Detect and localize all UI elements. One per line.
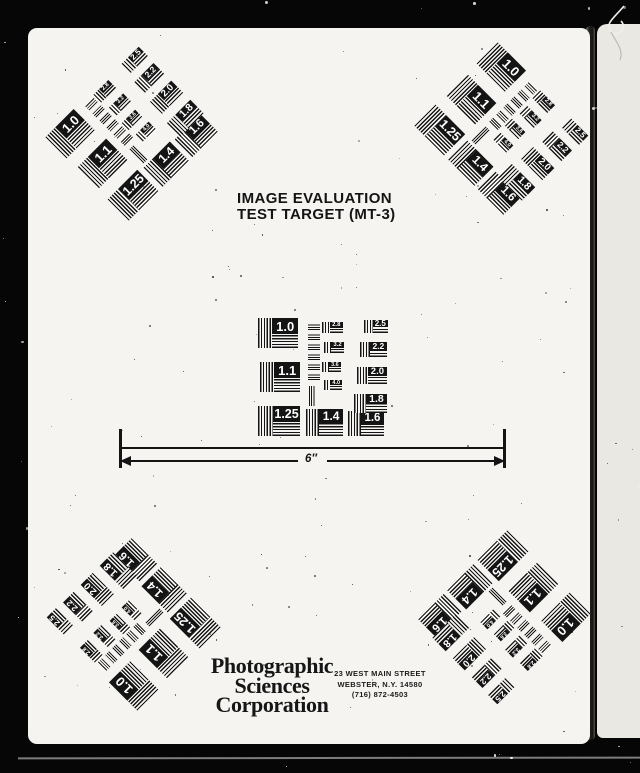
horizontal-stripes-block (273, 422, 300, 436)
resolution-chip-1-4: 1.4 (144, 141, 189, 186)
micro-stripe-bar (308, 324, 320, 330)
resolution-chip-1-1: 1.1 (260, 362, 300, 392)
resolution-chip-4-0: 4.0 (494, 133, 514, 153)
vertical-stripes-block (324, 342, 331, 353)
horizontal-stripes-block (373, 327, 388, 333)
resolution-chip-2-2: 2.2 (360, 342, 387, 357)
organization-line-3: Corporation (206, 695, 338, 715)
resolution-chip-3-6: 3.6 (494, 621, 515, 642)
scale-end-tick-right (503, 429, 506, 468)
speck (21, 461, 23, 463)
title-line-1: IMAGE EVALUATION (237, 191, 457, 207)
scale-arrowhead-left (120, 456, 131, 466)
micro-stripe-bar (538, 641, 551, 654)
resolution-chip-1-1: 1.1 (447, 75, 496, 124)
resolution-chip-2-2: 2.2 (63, 592, 93, 622)
resolution-chip-1-0: 1.0 (45, 109, 94, 158)
vertical-stripes-block (322, 362, 329, 372)
speck (3, 238, 4, 239)
micro-stripe-bar (308, 354, 320, 360)
horizontal-stripes-block (272, 334, 298, 348)
horizontal-stripes-block (366, 404, 387, 413)
resolution-chip-1-1: 1.1 (139, 629, 188, 678)
test-target-bottom-right: 1.0 1.1 1.25 1.4 1.6 2.5 2.2 2.0 1.8 (415, 530, 590, 705)
resolution-chip-2-5: 2.5 (488, 678, 514, 704)
resolution-value: 1.0 (272, 318, 298, 334)
test-target-top-left: 1.0 1.1 1.25 1.4 1.6 2.5 2.2 2.0 1.8 (45, 45, 220, 220)
horizontal-stripes-block (329, 367, 341, 372)
test-target-sheet: IMAGE EVALUATION TEST TARGET (MT-3) 1.0 … (28, 28, 590, 744)
resolution-chip-2-0: 2.0 (521, 147, 554, 180)
resolution-chip-1-25: 1.25 (170, 598, 221, 649)
resolution-value: 1.8 (366, 394, 387, 404)
test-target-bottom-left: 1.0 1.1 1.25 1.4 1.6 2.5 2.2 2.0 1.8 (45, 535, 220, 710)
title-line-2: TEST TARGET (MT-3) (237, 207, 457, 223)
micro-vertical-mark (129, 145, 147, 163)
address-line-2: WEBSTER, N.Y. 14580 (330, 680, 430, 691)
vertical-stripes-block (322, 322, 330, 333)
resolution-value: 1.4 (319, 409, 343, 424)
resolution-chip-1-6: 1.6 (348, 411, 384, 436)
resolution-chip-3-2: 3.2 (520, 106, 542, 128)
speck (265, 1, 268, 4)
horizontal-stripes-block (370, 350, 387, 357)
horizontal-stripes-block (274, 378, 300, 392)
resolution-chip-4-0: 4.0 (122, 600, 142, 620)
micro-stripe-bar (308, 334, 320, 340)
resolution-chip-3-2: 3.2 (109, 93, 131, 115)
organization-address: 23 WEST MAIN STREET WEBSTER, N.Y. 14580 … (330, 669, 430, 701)
resolution-chip-1-25: 1.25 (108, 170, 159, 221)
speck (473, 2, 476, 5)
resolution-chip-2-8: 2.8 (322, 322, 343, 333)
horizontal-stripes-block (330, 385, 342, 390)
scale-rule-line (120, 447, 505, 449)
resolution-chip-1-0: 1.0 (477, 42, 526, 91)
resolution-chip-4-0: 4.0 (136, 122, 156, 142)
resolution-chip-1-0: 1.0 (109, 661, 158, 710)
resolution-chip-3-2: 3.2 (93, 625, 115, 647)
horizontal-stripes-block (319, 424, 343, 436)
resolution-chip-4-0: 4.0 (324, 380, 342, 390)
vertical-stripes-block (360, 342, 370, 357)
horizontal-stripes-block (331, 348, 344, 353)
vertical-stripes-block (258, 406, 273, 436)
speck (5, 301, 6, 302)
vertical-stripes-block (260, 362, 274, 392)
resolution-chip-2-0: 2.0 (453, 637, 486, 670)
resolution-chip-1-4: 1.4 (306, 409, 343, 436)
resolution-chip-1-25: 1.25 (414, 105, 465, 156)
speck (18, 617, 19, 618)
resolution-chip-3-6: 3.6 (505, 119, 526, 140)
resolution-chip-3-6: 3.6 (322, 362, 341, 372)
resolution-chip-3-2: 3.2 (505, 636, 527, 658)
vertical-stripes-block (364, 320, 373, 333)
resolution-chip-2-8: 2.8 (93, 80, 116, 103)
vertical-stripes-block (354, 394, 366, 413)
resolution-chip-2-2: 2.2 (134, 63, 164, 93)
resolution-chip-1-8: 1.8 (354, 394, 387, 413)
speck (618, 746, 620, 748)
horizontal-stripes-block (368, 376, 387, 384)
horizontal-stripes-block (361, 425, 384, 437)
resolution-chip-1-25: 1.25 (258, 406, 300, 436)
resolution-chip-3-6: 3.6 (122, 110, 143, 131)
resolution-chip-2-8: 2.8 (520, 648, 543, 671)
resolution-chip-2-5: 2.5 (364, 320, 388, 333)
resolution-chip-1-0: 1.0 (541, 593, 590, 642)
scanned-microfilm-frame: { "document": { "title_line1": "IMAGE EV… (0, 0, 640, 773)
scanner-edge-line (18, 757, 640, 760)
scale-arrowhead-right (494, 456, 505, 466)
address-line-1: 23 WEST MAIN STREET (330, 669, 430, 680)
speck (630, 762, 631, 763)
resolution-value: 2.5 (373, 320, 388, 327)
resolution-chip-1-4: 1.4 (141, 567, 186, 612)
resolution-chip-2-0: 2.0 (357, 367, 387, 384)
scale-arrow-line-right (327, 460, 496, 462)
micro-stripe-bar (308, 364, 320, 370)
underlying-page (597, 24, 640, 738)
vertical-stripes-block (258, 318, 272, 348)
resolution-chip-1-0: 1.0 (258, 318, 298, 348)
speck (421, 8, 422, 9)
speck (499, 754, 500, 755)
speck (21, 341, 24, 344)
micro-vertical-mark (488, 588, 506, 606)
address-line-3: (716) 872-4503 (330, 690, 430, 701)
resolution-chip-2-8: 2.8 (532, 90, 555, 113)
resolution-value: 1.25 (273, 406, 300, 422)
resolution-value: 1.1 (274, 362, 300, 378)
scale-length-label: 6″ (296, 453, 326, 465)
resolution-chip-4-0: 4.0 (480, 610, 500, 630)
scale-arrow-line-left (128, 460, 298, 462)
micro-stripe-bar (308, 374, 320, 380)
speck (4, 42, 5, 43)
horizontal-stripes-block (330, 328, 343, 333)
resolution-value: 2.2 (370, 342, 387, 350)
vertical-stripes-block (348, 411, 361, 436)
organization-name: Photographic Sciences Corporation (206, 656, 338, 715)
resolution-chip-2-0: 2.0 (81, 573, 114, 606)
speck (588, 7, 590, 9)
page-title: IMAGE EVALUATION TEST TARGET (MT-3) (237, 191, 457, 222)
resolution-chip-2-5: 2.5 (47, 608, 73, 634)
micro-stripe-bar (308, 344, 320, 350)
resolution-chip-1-1: 1.1 (509, 563, 558, 612)
scale-end-tick-left (119, 429, 122, 468)
fiber-scratch-mark (598, 2, 638, 74)
resolution-value: 1.6 (361, 411, 384, 425)
micro-vertical-mark (309, 386, 315, 406)
resolution-value: 2.0 (368, 367, 387, 376)
vertical-stripes-block (306, 409, 319, 436)
resolution-chip-2-5: 2.5 (122, 47, 148, 73)
resolution-chip-2-2: 2.2 (472, 658, 502, 688)
resolution-chip-1-1: 1.1 (78, 139, 127, 188)
micro-vertical-mark (472, 126, 490, 144)
resolution-chip-1-25: 1.25 (478, 530, 529, 581)
vertical-stripes-block (357, 367, 368, 384)
resolution-chip-1-4: 1.4 (447, 564, 492, 609)
micro-stripe-bar (120, 133, 133, 146)
resolution-chip-3-2: 3.2 (324, 342, 344, 353)
speck (286, 766, 287, 767)
test-target-center: 1.0 1.1 1.25 1.4 1.6 2.5 2.2 2.0 1.8 (258, 318, 388, 436)
micro-vertical-mark (145, 608, 163, 626)
resolution-chip-2-5: 2.5 (562, 119, 588, 145)
resolution-chip-2-2: 2.2 (542, 131, 572, 161)
